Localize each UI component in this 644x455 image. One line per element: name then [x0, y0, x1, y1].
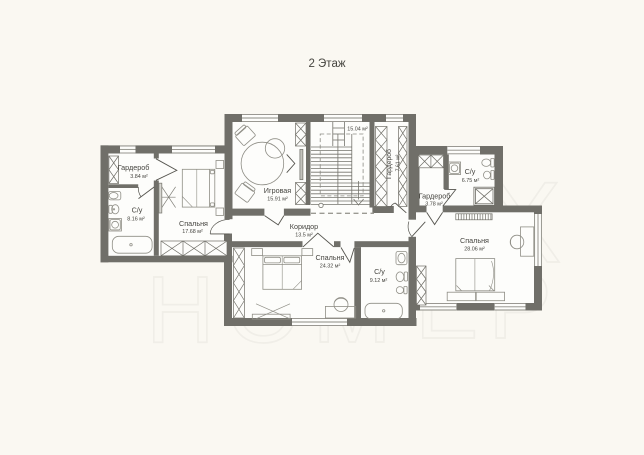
svg-text:17.68 м²: 17.68 м²	[182, 229, 203, 235]
svg-text:28.06 м²: 28.06 м²	[464, 246, 485, 252]
svg-text:Спальня: Спальня	[179, 219, 208, 228]
svg-text:2 Этаж: 2 Этаж	[308, 58, 345, 70]
svg-text:3.78 м²: 3.78 м²	[425, 202, 443, 208]
svg-text:Коридор: Коридор	[290, 222, 318, 231]
svg-text:15.91 м²: 15.91 м²	[267, 197, 288, 203]
svg-text:Спальня: Спальня	[460, 236, 489, 245]
svg-text:13.5 м²: 13.5 м²	[295, 233, 313, 239]
svg-text:7.61 м²: 7.61 м²	[396, 154, 402, 171]
svg-text:С/у: С/у	[374, 267, 385, 276]
svg-text:С/у: С/у	[465, 167, 476, 176]
svg-text:Спальня: Спальня	[316, 253, 345, 262]
svg-text:8.16 м²: 8.16 м²	[127, 217, 145, 223]
svg-text:3.84 м²: 3.84 м²	[130, 174, 148, 180]
svg-text:Гардероб: Гардероб	[118, 163, 150, 172]
svg-text:Игровая: Игровая	[264, 186, 292, 195]
svg-text:9.12 м²: 9.12 м²	[370, 278, 388, 284]
svg-text:Гардероб: Гардероб	[385, 149, 393, 179]
svg-text:Гардероб: Гардероб	[419, 192, 451, 201]
svg-text:24.32 м²: 24.32 м²	[320, 264, 341, 270]
svg-text:15.04 м²: 15.04 м²	[347, 127, 368, 133]
svg-text:6.75 м²: 6.75 м²	[462, 178, 480, 184]
svg-text:С/у: С/у	[132, 206, 143, 215]
